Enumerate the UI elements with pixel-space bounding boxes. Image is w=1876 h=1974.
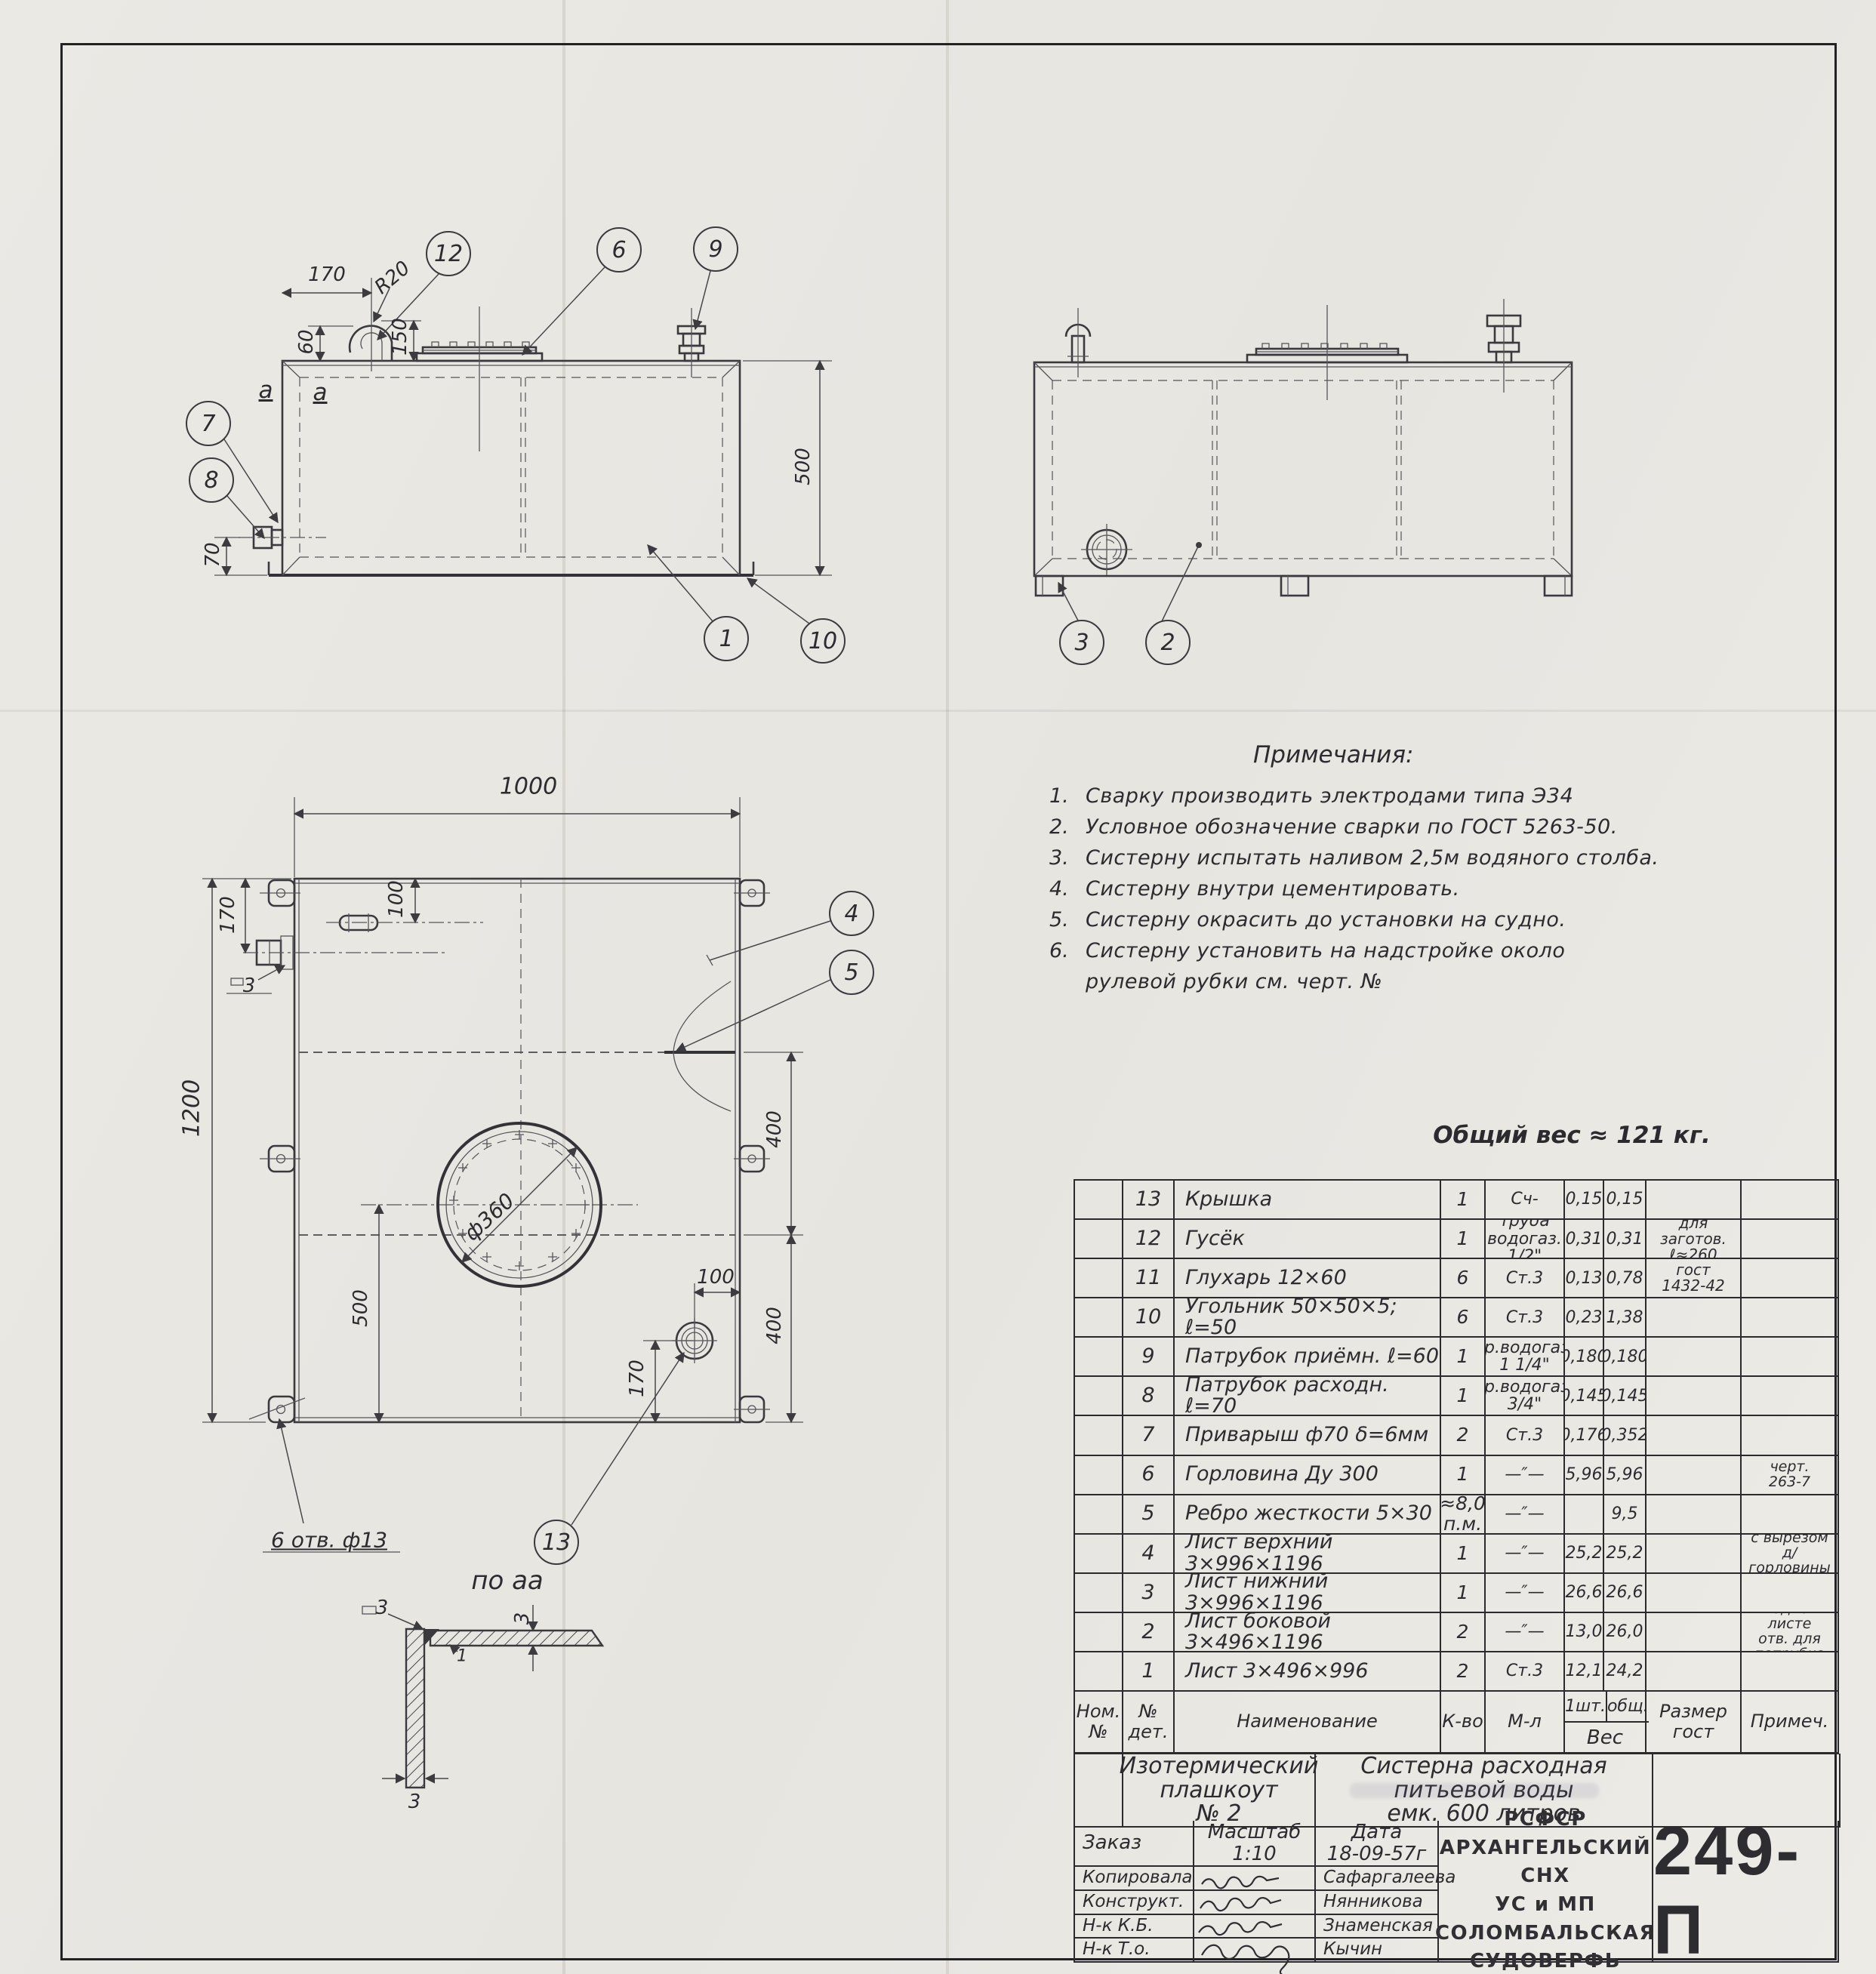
stamp-smudge [1350,1783,1599,1798]
cell-weight-total: 0,180 [1604,1338,1647,1377]
table-row: 2 Лист боковой 3×496×1196 2 —″— 13,0 26,… [1075,1613,1839,1652]
header-size: Размер гост [1647,1691,1742,1754]
cell-material: труба водогаз. 1/2" [1486,1220,1565,1259]
dimension-label: 500 [350,1289,372,1327]
cell-weight-total: 1,38 [1604,1298,1647,1338]
cell-qty: 2 [1441,1613,1486,1652]
cell-size-gost [1647,1377,1742,1416]
cell-weight-total: 0,78 [1604,1259,1647,1298]
cell-material: тр.водогаз. 1 1/4" [1486,1338,1565,1377]
cell-detail-number: 11 [1123,1259,1175,1298]
cell-pos [1075,1259,1123,1298]
title-block-bottom: Заказ Масштаб 1:10 Дата 18-09-57г Копиро… [1074,1821,1839,1963]
cell-weight-one [1565,1495,1604,1535]
cell-pos [1075,1298,1123,1338]
front-view [214,278,832,575]
table-row: 5 Ребро жесткости 5×30 ≈8,0 п.м. —″— 9,5 [1075,1495,1839,1535]
dimension-label: 150 [389,318,411,356]
cell-note [1742,1220,1839,1259]
cell-qty: 1 [1441,1377,1486,1416]
cell-name: Ребро жесткости 5×30 [1175,1495,1441,1535]
dimension-label: 6 отв. ф13 [271,1528,387,1553]
part-callout: 13 [534,1520,579,1565]
cell-weight-total: 0,352 [1604,1416,1647,1455]
cell-size-gost [1647,1613,1742,1652]
note-item: 3. Систерну испытать наливом 2,5м водяно… [1049,842,1782,873]
cell-pos [1075,1220,1123,1259]
cell-name: Глухарь 12×60 [1175,1259,1441,1298]
dimension-label: 100 [385,880,408,918]
part-callout: 3 [1059,620,1104,665]
cell-pos [1075,1652,1123,1692]
cell-size-gost [1647,1416,1742,1455]
dimension-label: 3 [408,1791,421,1813]
cell-weight-one: 0,180 [1565,1338,1604,1377]
dimension-label: 100 [697,1266,735,1289]
part-callout: 7 [186,401,231,446]
cell-pos [1075,1416,1123,1455]
cell-detail-number: 8 [1123,1377,1175,1416]
dimension-label: 400 [763,1110,786,1148]
cell-qty: 2 [1441,1416,1486,1455]
header-note: Примеч. [1742,1691,1839,1754]
dimension-label: 3 [243,975,256,997]
cell-note [1742,1416,1839,1455]
cell-weight-total: 0,31 [1604,1220,1647,1259]
cell-note [1742,1377,1839,1416]
header-weight-one: 1шт. [1565,1691,1607,1723]
part-callout: 12 [426,231,471,276]
cell-size-gost: для заготов. ℓ≈260 [1647,1220,1742,1259]
note-item: рулевой рубки см. черт. № [1049,966,1782,997]
dimension-label: a [259,377,273,404]
dimension-label: 1200 [179,1079,205,1137]
part-callout: 8 [189,457,234,503]
cell-qty: 1 [1441,1338,1486,1377]
date-cell: Дата 18-09-57г [1316,1821,1439,1867]
cell-material: —″— [1486,1456,1565,1495]
signature-role: Н-к Т.о. [1075,1939,1194,1963]
cell-material: Ст.3 [1486,1416,1565,1455]
side-view [1034,299,1572,596]
cell-pos [1075,1181,1123,1220]
cell-weight-one: 13,0 [1565,1613,1604,1652]
cell-weight-one: 0,145 [1565,1377,1604,1416]
cell-detail-number: 6 [1123,1456,1175,1495]
cell-name: Лист нижний 3×996×1196 [1175,1574,1441,1613]
header-det: № дет. [1123,1691,1175,1754]
dimension-label: 170 [626,1360,648,1397]
cell-size-gost [1647,1652,1742,1692]
table-row: 12 Гусёк 1 труба водогаз. 1/2" 0,31 0,31… [1075,1220,1839,1259]
cell-name: Приварыш ф70 δ=6мм [1175,1416,1441,1455]
cell-weight-one: 0,13 [1565,1259,1604,1298]
cell-qty: 1 [1441,1574,1486,1613]
cell-detail-number: 4 [1123,1535,1175,1574]
header-pos: Ном. № [1075,1691,1123,1754]
signature-row: Копировала Сафаргалеева [1075,1867,1439,1891]
cell-detail-number: 10 [1123,1298,1175,1338]
cell-name: Лист боковой 3×496×1196 [1175,1613,1441,1652]
parts-table: 13 Крышка 1 Сч- 0,15 0,15 12 Гусёк 1 тру… [1074,1179,1839,1690]
signature-name: Сафаргалеева [1316,1867,1439,1891]
cell-material: —″— [1486,1613,1565,1652]
dimension-label: 70 [202,542,224,567]
part-callout: 10 [800,618,846,664]
cell-weight-one: 0,176 [1565,1416,1604,1455]
document-number: 249-П [1653,1821,1839,1963]
cell-weight-total: 9,5 [1604,1495,1647,1535]
project-name: Изотермический плашкоут № 2 [1123,1754,1316,1828]
cell-qty: 1 [1441,1535,1486,1574]
section-view [362,1605,602,1788]
signature-role: Н-к К.Б. [1075,1915,1194,1939]
cell-detail-number: 9 [1123,1338,1175,1377]
signature-name: Знаменская [1316,1915,1439,1939]
signature-role: Копировала [1075,1867,1194,1891]
dimension-label: 1 [457,1647,467,1666]
table-row: 9 Патрубок приёмн. ℓ=60 1 тр.водогаз. 1 … [1075,1338,1839,1377]
dimension-label: a [313,379,328,406]
cell-size-gost: гост 1432-42 [1647,1259,1742,1298]
signature-scrawl-cell [1194,1867,1316,1891]
cell-detail-number: 5 [1123,1495,1175,1535]
cell-note [1742,1338,1839,1377]
signature-role: Конструкт. [1075,1891,1194,1915]
order-label: Заказ [1075,1821,1194,1867]
cell-name: Угольник 50×50×5; ℓ=50 [1175,1298,1441,1338]
dimension-label: по аа [471,1566,544,1596]
cell-material: —″— [1486,1574,1565,1613]
cell-size-gost [1647,1298,1742,1338]
part-callout: 9 [693,226,738,272]
table-row: 7 Приварыш ф70 δ=6мм 2 Ст.3 0,176 0,352 [1075,1416,1839,1455]
cell-name: Патрубок приёмн. ℓ=60 [1175,1338,1441,1377]
cell-size-gost [1647,1535,1742,1574]
cell-size-gost [1647,1456,1742,1495]
part-callout: 6 [596,227,642,273]
cell-qty: 2 [1441,1652,1486,1692]
cell-qty: 6 [1441,1259,1486,1298]
cell-material: Ст.3 [1486,1652,1565,1692]
header-weight-label: Вес [1565,1723,1645,1752]
notes-block: Примечания: 1. Сварку производить электр… [1049,741,1782,997]
cell-note [1742,1298,1839,1338]
cell-material: Сч- [1486,1181,1565,1220]
part-callout: 2 [1145,620,1191,665]
signature-scrawl-cell [1194,1891,1316,1915]
cell-weight-total: 26,6 [1604,1574,1647,1613]
dimension-label: 3 [511,1612,534,1625]
cell-name: Патрубок расходн. ℓ=70 [1175,1377,1441,1416]
note-item: 4. Систерну внутри цементировать. [1049,873,1782,904]
cell-qty: 1 [1441,1181,1486,1220]
cell-weight-total: 24,2 [1604,1652,1647,1692]
note-item: 1. Сварку производить электродами типа Э… [1049,781,1782,811]
dimension-label: 400 [763,1307,786,1344]
plan-view [202,797,803,1422]
header-name: Наименование [1175,1691,1441,1754]
cell-name: Горловина Ду 300 [1175,1456,1441,1495]
signature-name: Нянникова [1316,1891,1439,1915]
cell-note [1742,1574,1839,1613]
cell-size-gost [1647,1338,1742,1377]
part-callout: 4 [829,891,874,936]
table-row: 4 Лист верхний 3×996×1196 1 —″— 25,2 25,… [1075,1535,1839,1574]
note-item: 2. Условное обозначение сварки по ГОСТ 5… [1049,811,1782,842]
cell-qty: 6 [1441,1298,1486,1338]
table-row: 11 Глухарь 12×60 6 Ст.3 0,13 0,78 гост 1… [1075,1259,1839,1298]
cell-qty: 1 [1441,1220,1486,1259]
dimension-label: 500 [792,448,815,485]
organization: РСФСР АРХАНГЕЛЬСКИЙ СНХ УС и МП СОЛОМБАЛ… [1439,1821,1653,1963]
dimension-label: 60 [295,329,318,354]
drawing-sheet: 170R206015050070aa10001200170100500ф3604… [0,0,1876,1974]
signature-row: Н-к К.Б. Знаменская [1075,1915,1439,1939]
cell-material: Ст.3 [1486,1259,1565,1298]
notes-title: Примечания: [1253,741,1782,768]
cell-name: Крышка [1175,1181,1441,1220]
total-weight: Общий вес ≈ 121 кг. [1433,1122,1711,1149]
table-row: 13 Крышка 1 Сч- 0,15 0,15 [1075,1181,1839,1220]
cell-name: Лист верхний 3×996×1196 [1175,1535,1441,1574]
cell-qty: 1 [1441,1456,1486,1495]
table-header: Ном. № № дет. Наименование К-во М-л 1шт.… [1074,1690,1839,1754]
cell-material: тр.водогаз. 3/4" [1486,1377,1565,1416]
table-row: 8 Патрубок расходн. ℓ=70 1 тр.водогаз. 3… [1075,1377,1839,1416]
cell-weight-total: 25,2 [1604,1535,1647,1574]
cell-size-gost [1647,1574,1742,1613]
cell-detail-number: 2 [1123,1613,1175,1652]
cell-pos [1075,1456,1123,1495]
cell-note: черт. 263-7 [1742,1456,1839,1495]
cell-detail-number: 3 [1123,1574,1175,1613]
signature-scrawl-cell [1194,1915,1316,1939]
cell-weight-total: 0,15 [1604,1181,1647,1220]
cell-weight-one: 26,6 [1565,1574,1604,1613]
cell-weight-one: 5,96 [1565,1456,1604,1495]
cell-note [1742,1652,1839,1692]
cell-weight-one: 0,31 [1565,1220,1604,1259]
cell-note: в одном листе отв. для патрубка [1742,1613,1839,1652]
cell-detail-number: 12 [1123,1220,1175,1259]
scale-cell: Масштаб 1:10 [1194,1821,1316,1867]
table-row: 10 Угольник 50×50×5; ℓ=50 6 Ст.3 0,23 1,… [1075,1298,1839,1338]
cell-detail-number: 13 [1123,1181,1175,1220]
cell-material: —″— [1486,1535,1565,1574]
cell-pos [1075,1377,1123,1416]
table-row: 1 Лист 3×496×996 2 Ст.3 12,1 24,2 [1075,1652,1839,1692]
cell-material: —″— [1486,1495,1565,1535]
cell-name: Лист 3×496×996 [1175,1652,1441,1692]
cell-size-gost [1647,1495,1742,1535]
cell-pos [1075,1535,1123,1574]
dimension-label: 170 [217,896,239,934]
cell-weight-one: 25,2 [1565,1535,1604,1574]
cell-weight-total: 0,145 [1604,1377,1647,1416]
note-item: 5. Систерну окрасить до установки на суд… [1049,904,1782,935]
header-weight: 1шт. общ. Вес [1565,1691,1647,1754]
part-callout: 1 [704,616,749,661]
cell-pos [1075,1574,1123,1613]
signature-row: Конструкт. Нянникова [1075,1891,1439,1915]
cell-note: с вырезом д/горловины [1742,1535,1839,1574]
title-empty-cell [1075,1754,1123,1828]
cell-note [1742,1495,1839,1535]
note-item: 6. Систерну установить на надстройке око… [1049,935,1782,966]
cell-detail-number: 7 [1123,1416,1175,1455]
header-weight-total: общ. [1607,1691,1649,1723]
cell-pos [1075,1613,1123,1652]
header-qty: К-во [1441,1691,1486,1754]
cell-size-gost [1647,1181,1742,1220]
cell-weight-one: 12,1 [1565,1652,1604,1692]
signature-name: Кычин [1316,1939,1439,1963]
cell-note [1742,1259,1839,1298]
cell-note [1742,1181,1839,1220]
dimension-label: 170 [308,263,346,286]
dimension-label: 3 [376,1597,389,1619]
cell-weight-total: 26,0 [1604,1613,1647,1652]
signature-scrawl-cell [1194,1939,1316,1963]
part-callout: 5 [829,950,874,995]
table-row: 3 Лист нижний 3×996×1196 1 —″— 26,6 26,6 [1075,1574,1839,1613]
cell-name: Гусёк [1175,1220,1441,1259]
cell-material: Ст.3 [1486,1298,1565,1338]
cell-detail-number: 1 [1123,1652,1175,1692]
header-mat: М-л [1486,1691,1565,1754]
table-row: 6 Горловина Ду 300 1 —″— 5,96 5,96 черт.… [1075,1456,1839,1495]
signature-row: Н-к Т.о. Кычин [1075,1939,1439,1963]
cell-weight-one: 0,15 [1565,1181,1604,1220]
cell-weight-one: 0,23 [1565,1298,1604,1338]
cell-pos [1075,1495,1123,1535]
dimension-label: 1000 [500,774,557,800]
cell-qty: ≈8,0 п.м. [1441,1495,1486,1535]
cell-weight-total: 5,96 [1604,1456,1647,1495]
cell-pos [1075,1338,1123,1377]
